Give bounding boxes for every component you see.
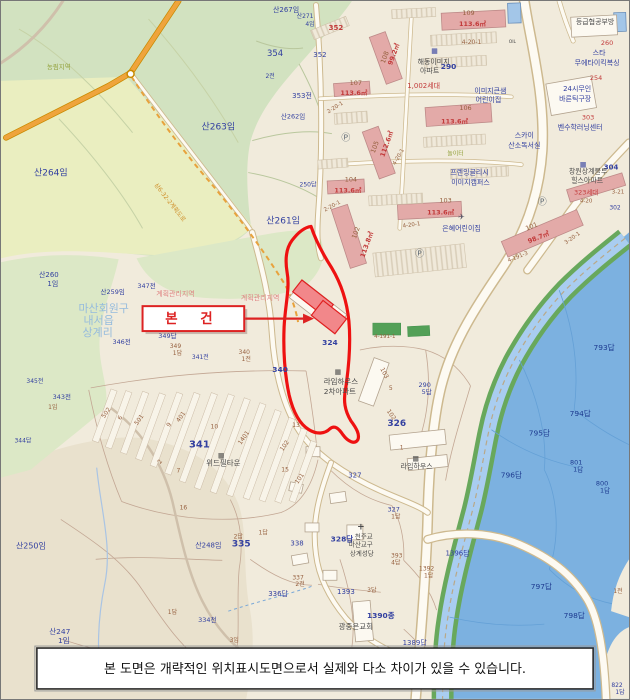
map-label: OIL bbox=[509, 39, 517, 45]
road-junction-node bbox=[127, 70, 134, 77]
map-frame: 산267임산2714임3523523542전353전산262임산263임산264… bbox=[0, 0, 630, 700]
map-label: 4답 bbox=[391, 559, 401, 566]
map-label: 산261임 bbox=[266, 214, 300, 226]
map-label: 794답 bbox=[570, 408, 591, 418]
map-label: 1임 bbox=[58, 636, 70, 645]
map-label: 1396답 bbox=[445, 548, 470, 557]
map-label: 산소독서실 bbox=[508, 141, 540, 150]
building bbox=[508, 3, 522, 23]
map-label: 346전 bbox=[112, 337, 130, 346]
map-label: 라임하우스 bbox=[324, 376, 358, 386]
map-label: 798답 bbox=[564, 610, 585, 620]
map-label: 무에타이킥복싱 bbox=[575, 58, 620, 67]
map-label: 1답 bbox=[259, 529, 269, 536]
map-label: 1답 bbox=[573, 466, 583, 474]
apartment-icon: ▦ bbox=[335, 368, 342, 376]
map-label: 2전 bbox=[295, 580, 304, 588]
map-label: 4-20 bbox=[580, 198, 593, 204]
map-label: 393 bbox=[391, 552, 403, 559]
map-label: 산259임 bbox=[101, 287, 125, 296]
parking-row bbox=[318, 158, 348, 169]
map-label: 4-20-1 bbox=[462, 39, 482, 46]
map-label: 창원상계블루 bbox=[569, 167, 608, 176]
map-label: 산250임 bbox=[16, 540, 46, 550]
map-label: 822 bbox=[611, 682, 623, 689]
sports-field bbox=[407, 326, 429, 337]
map-label: 1,002세대 bbox=[407, 81, 440, 90]
map-label: 바른틱구장 bbox=[559, 94, 592, 103]
map-label: 340 bbox=[272, 365, 288, 374]
map-label: 산271 bbox=[297, 12, 314, 20]
map-label: 327 bbox=[348, 472, 361, 480]
apartment-icon: ▦ bbox=[431, 47, 438, 55]
map-label: 347전 bbox=[137, 281, 155, 290]
map-label: 힐스아파트 bbox=[571, 176, 604, 185]
map-label: 상계성당 bbox=[350, 548, 374, 557]
church-cross-icon: + bbox=[357, 522, 365, 532]
map-label: 109 bbox=[462, 9, 474, 17]
map-label: 16 bbox=[180, 504, 188, 511]
map-label: 352 bbox=[329, 24, 344, 32]
map-label: 1답 bbox=[424, 572, 434, 579]
map-label: 4-191-1 bbox=[374, 334, 395, 340]
map-label: 327 bbox=[388, 505, 400, 513]
map-label: 345전 bbox=[26, 377, 43, 385]
map-label: 광중은교회 bbox=[339, 621, 373, 631]
map-label: 2차아파트 bbox=[324, 386, 356, 396]
callout-label: 본 건 bbox=[165, 310, 221, 327]
map-label: 5 bbox=[389, 385, 393, 392]
map-label: 은혜어린이집 bbox=[442, 223, 480, 232]
map-label: 113.6㎡ bbox=[427, 207, 454, 216]
map-label: 290 bbox=[441, 62, 457, 71]
map-label: 13 bbox=[292, 422, 300, 429]
map-label: 벤수학러닝센터 bbox=[558, 123, 603, 132]
map-label: 24시무인 bbox=[563, 84, 591, 93]
map-label: 323세대 bbox=[574, 187, 598, 196]
map-label: 343전 bbox=[53, 392, 71, 401]
map-label: 349 bbox=[170, 343, 182, 350]
map-label: 106 bbox=[459, 104, 471, 112]
map-label: 4임 bbox=[305, 20, 314, 28]
map-label: 3-21 bbox=[612, 189, 624, 195]
map-label: 1답 bbox=[391, 513, 401, 520]
map-label: 라임하우스 bbox=[401, 462, 434, 471]
map-label: 336답 bbox=[268, 589, 288, 598]
map-label: 계획관리지역 bbox=[241, 293, 279, 302]
map-label: 1390종 bbox=[367, 611, 395, 620]
map-label: 303 bbox=[582, 114, 594, 122]
map-label: 등급협공부방 bbox=[576, 17, 615, 26]
map-canvas: 산267임산2714임3523523542전353전산262임산263임산264… bbox=[1, 1, 629, 699]
map-label: 797답 bbox=[531, 581, 552, 591]
map-label: 이미지큰샘 bbox=[474, 86, 506, 95]
map-label: 250답 bbox=[300, 182, 317, 189]
map-label: 산264임 bbox=[34, 167, 68, 179]
map-label: 2전 bbox=[265, 72, 274, 80]
apartment-icon: ▦ bbox=[412, 455, 419, 463]
map-label: 1답 bbox=[168, 609, 178, 616]
map-label: 스타 bbox=[593, 48, 606, 57]
map-label: 103 bbox=[439, 196, 451, 204]
map-label: 1전 bbox=[613, 587, 622, 595]
map-label: 795답 bbox=[529, 428, 550, 438]
map-label: 341전 bbox=[192, 353, 209, 361]
map-label: 산263임 bbox=[201, 121, 235, 133]
map-label: 340 bbox=[239, 349, 251, 356]
map-label: 324 bbox=[322, 338, 338, 347]
map-label: 스카이 bbox=[515, 131, 534, 140]
map-label: 프렌잉글리시 bbox=[450, 168, 488, 177]
map-label: 어린이집 bbox=[476, 95, 502, 104]
map-label: 3답 bbox=[367, 587, 377, 594]
map-label: 337 bbox=[292, 574, 304, 581]
parking-row bbox=[392, 7, 436, 18]
map-label: 302 bbox=[609, 204, 621, 211]
map-label: 3임 bbox=[230, 636, 239, 644]
map-label: 7 bbox=[177, 468, 181, 475]
parking-row bbox=[334, 111, 368, 124]
map-label: 1답 bbox=[615, 689, 625, 696]
parking-icon: Ⓟ bbox=[538, 196, 547, 207]
map-label: 326 bbox=[387, 419, 406, 429]
map-label: 산267임 bbox=[273, 5, 299, 14]
map-label: 1393 bbox=[337, 588, 355, 596]
map-label: 농림지역 bbox=[47, 62, 71, 71]
map-label: 796답 bbox=[501, 470, 522, 480]
map-label: 1392 bbox=[419, 565, 434, 572]
map-label: 334전 bbox=[198, 615, 216, 624]
map-label: 341 bbox=[189, 440, 210, 451]
map-label: 산247 bbox=[49, 626, 70, 636]
map-label: 260 bbox=[601, 39, 613, 47]
apartment-icon: ▦ bbox=[580, 161, 587, 169]
map-label: 113.6㎡ bbox=[441, 117, 468, 126]
map-label: 1답 bbox=[600, 487, 610, 495]
map-label: 113.6㎡ bbox=[334, 186, 361, 195]
map-label: 335 bbox=[232, 539, 251, 549]
map-label: 1임 bbox=[48, 403, 57, 411]
map-label: 793답 bbox=[594, 342, 615, 352]
disclaimer: 본 도면은 개략적인 위치표시도면으로서 실제와 다소 차이가 있을 수 있습니… bbox=[35, 646, 595, 691]
map-label: 천주교 bbox=[355, 531, 373, 540]
map-label: 1답 bbox=[173, 350, 183, 357]
map-label: 이미지캠퍼스 bbox=[451, 178, 490, 187]
airplane-icon: ✈ bbox=[458, 212, 465, 221]
map-label: 산260 bbox=[39, 270, 59, 279]
map-label: 1 bbox=[400, 445, 404, 452]
map-label: 상계리 bbox=[83, 326, 113, 339]
map-label: 354 bbox=[267, 48, 283, 58]
map-label: 15 bbox=[281, 467, 289, 474]
map-label: 놀이터 bbox=[447, 150, 463, 158]
parking-icon: Ⓟ bbox=[341, 133, 350, 144]
map-label: 1전 bbox=[242, 355, 251, 363]
disclaimer-text: 본 도면은 개략적인 위치표시도면으로서 실제와 다소 차이가 있을 수 있습니… bbox=[104, 662, 526, 677]
map-label: 113.6㎡ bbox=[459, 19, 486, 28]
map-label: 5답 bbox=[422, 388, 432, 396]
map-label: 338 bbox=[290, 539, 303, 547]
parking-icon: Ⓟ bbox=[415, 248, 424, 259]
map-label: 352 bbox=[313, 51, 326, 59]
building bbox=[305, 523, 319, 532]
map-label: 아파트 bbox=[420, 66, 440, 75]
apartment-icon: ▦ bbox=[218, 452, 225, 460]
map-label: 마산교구 bbox=[349, 539, 373, 548]
map-label: 10 bbox=[211, 424, 219, 431]
map-label: 산248임 bbox=[195, 540, 221, 549]
map-label: 113.6㎡ bbox=[340, 88, 367, 97]
building bbox=[323, 570, 337, 580]
building bbox=[329, 491, 346, 503]
map-label: 계획관리지역 bbox=[156, 289, 194, 298]
map-label: 산262임 bbox=[281, 112, 305, 121]
map-label: 353전 bbox=[292, 91, 312, 100]
map-label: 1임 bbox=[47, 280, 58, 288]
map-label: 344답 bbox=[14, 438, 31, 445]
map-label: 104 bbox=[345, 176, 357, 184]
map-label: 254 bbox=[590, 74, 602, 82]
map-label: 107 bbox=[350, 79, 362, 87]
